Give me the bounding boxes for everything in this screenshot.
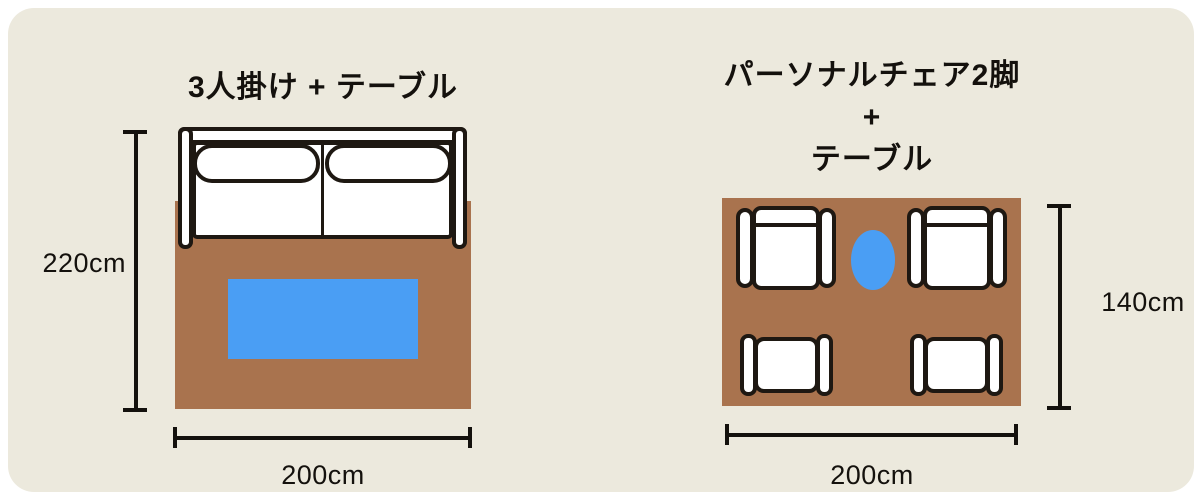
chair-armrest-right [989,208,1007,288]
chair-backrest-line [923,223,991,227]
right-width-dimension-label: 200cm [772,460,972,491]
chair-armrest-right [818,208,836,288]
right-width-dimension-line [727,433,1017,437]
ottoman-pad [754,337,819,393]
sofa-armrest-left [178,127,193,249]
chair-body [923,206,991,290]
ottoman-right-icon [910,334,1003,396]
right-height-dimension-tick-bottom [1047,406,1071,410]
sofa-backrest [178,127,467,144]
left-width-dimension-tick-right [468,427,472,448]
left-height-dimension-tick-top [123,130,147,134]
left-height-dimension-tick-bottom [123,408,147,412]
right-width-dimension-tick-right [1014,424,1018,445]
left-width-dimension-label: 200cm [223,460,423,491]
left-width-dimension-tick-left [173,427,177,448]
diagram-stage: 3人掛け + テーブル 220cm 200cm [0,0,1202,500]
sofa-top-view-icon [178,127,467,249]
right-panel-title-line2: テーブル [672,139,1072,181]
left-height-dimension-label: 220cm [16,248,126,279]
ottoman-left-icon [740,334,833,396]
left-height-dimension-line [134,130,138,412]
right-height-dimension-tick-top [1047,204,1071,208]
chair-body [752,206,820,290]
personal-chair-left-icon [736,206,836,290]
right-width-dimension-tick-left [725,424,729,445]
sofa-cushion-left [193,144,320,183]
chair-backrest-line [752,223,820,227]
sofa-seat-divider [321,143,324,237]
sofa-cushion-right [325,144,452,183]
right-height-dimension-line [1058,204,1062,410]
left-width-dimension-line [175,436,471,440]
layout-card: 3人掛け + テーブル 220cm 200cm [8,8,1194,492]
personal-chair-right-icon [907,206,1007,290]
table-rect-icon [228,279,418,359]
right-height-dimension-label: 140cm [1083,287,1202,318]
left-panel-title: 3人掛け + テーブル [123,70,523,106]
right-panel-title: パーソナルチェア2脚 + テーブル [672,55,1072,181]
right-panel-title-plus: + [672,97,1072,139]
sofa-armrest-right [452,127,467,249]
table-oval-icon [851,230,895,290]
right-panel-title-line1: パーソナルチェア2脚 [672,55,1072,97]
ottoman-pad [924,337,989,393]
